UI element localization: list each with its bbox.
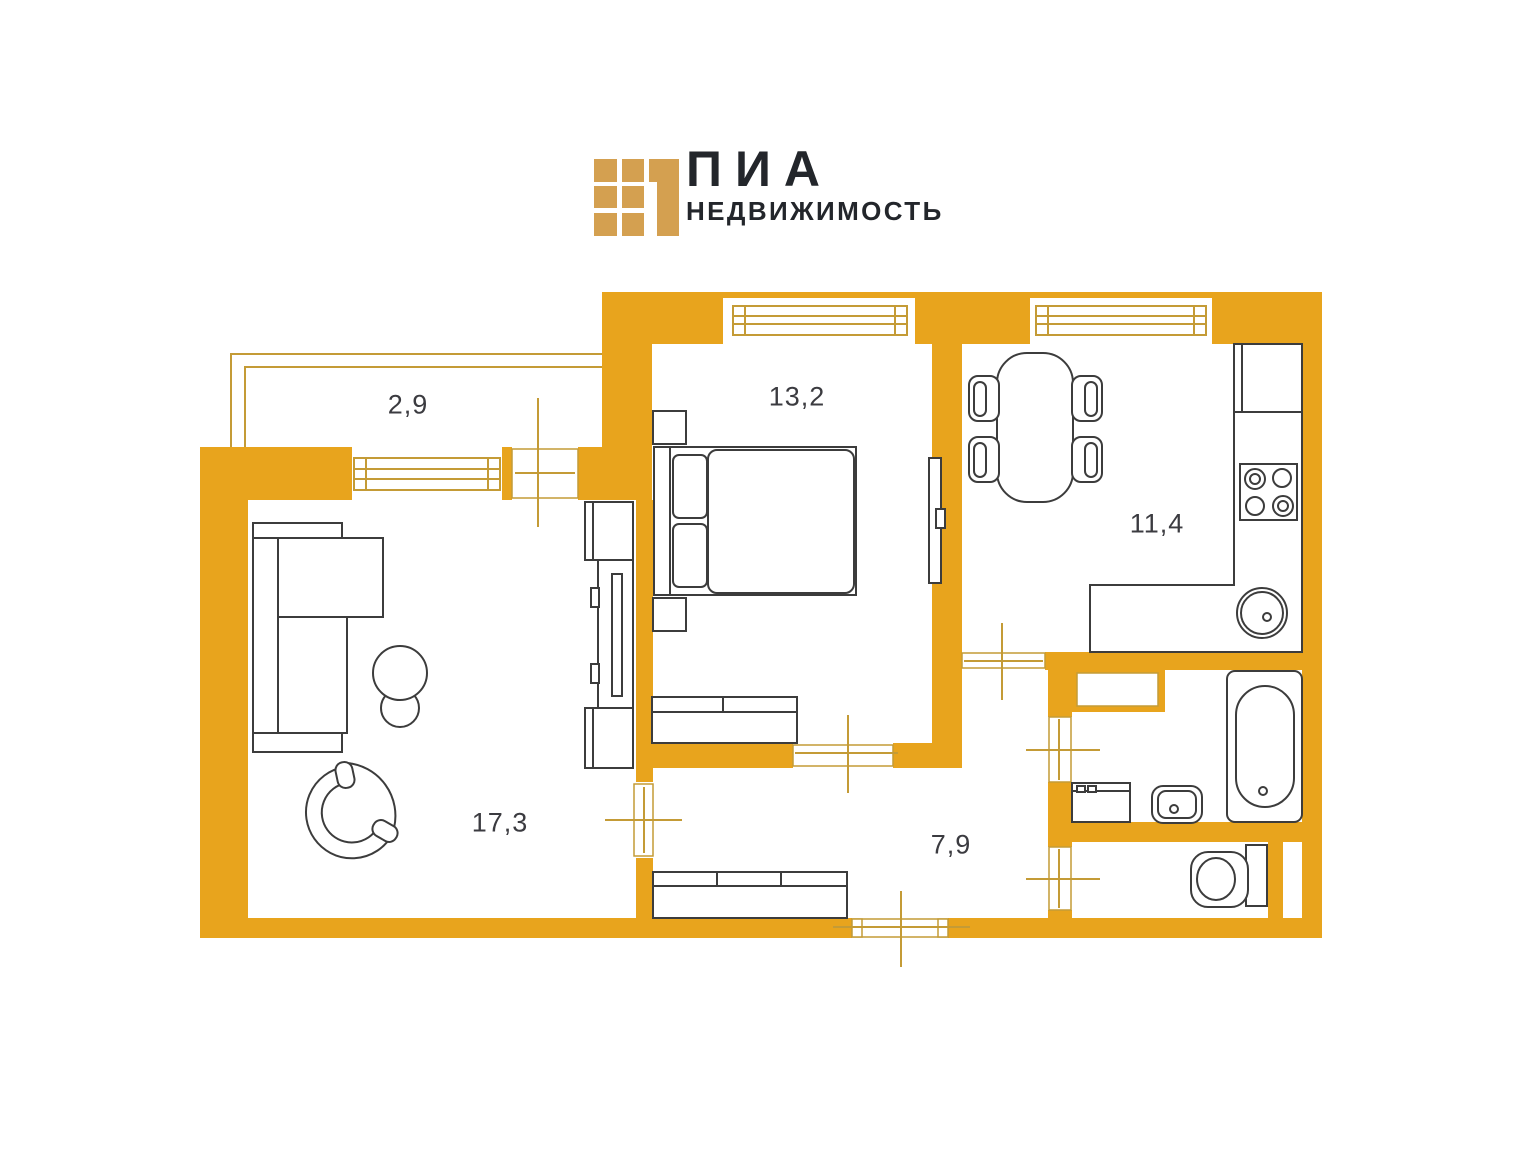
nightstand: [653, 411, 686, 444]
room-label-balcony: 2,9: [388, 390, 429, 421]
kitchen-door-icon: [964, 623, 1043, 700]
bathtub: [1227, 671, 1302, 822]
sofa: [253, 523, 383, 752]
armchair: [306, 761, 401, 859]
dining-table: [997, 353, 1073, 502]
chair: [969, 376, 999, 421]
chair: [1072, 437, 1102, 482]
room-label-living-room: 17,3: [472, 808, 529, 839]
wall-unit: [585, 502, 633, 768]
floor-plan: [0, 0, 1524, 1156]
toilet: [1191, 845, 1267, 907]
room-label-bedroom: 13,2: [769, 382, 826, 413]
ventilation-shaft: [1077, 673, 1158, 706]
bedroom-door-opening: [793, 745, 893, 766]
kitchen-sink: [1237, 588, 1287, 638]
room-label-hallway: 7,9: [931, 830, 972, 861]
dresser: [652, 697, 797, 743]
side-table: [373, 646, 427, 727]
hallway-wardrobe: [653, 872, 847, 918]
washing-machine: [1072, 783, 1130, 822]
nightstand: [653, 598, 686, 631]
room-label-kitchen: 11,4: [1130, 509, 1185, 540]
double-bed: [654, 447, 856, 595]
bathroom-sink: [1152, 786, 1202, 823]
bedroom-door-icon: [795, 715, 898, 793]
chair: [1072, 376, 1102, 421]
living-door-icon: [605, 787, 682, 853]
stove: [1240, 464, 1297, 520]
chair: [969, 437, 999, 482]
